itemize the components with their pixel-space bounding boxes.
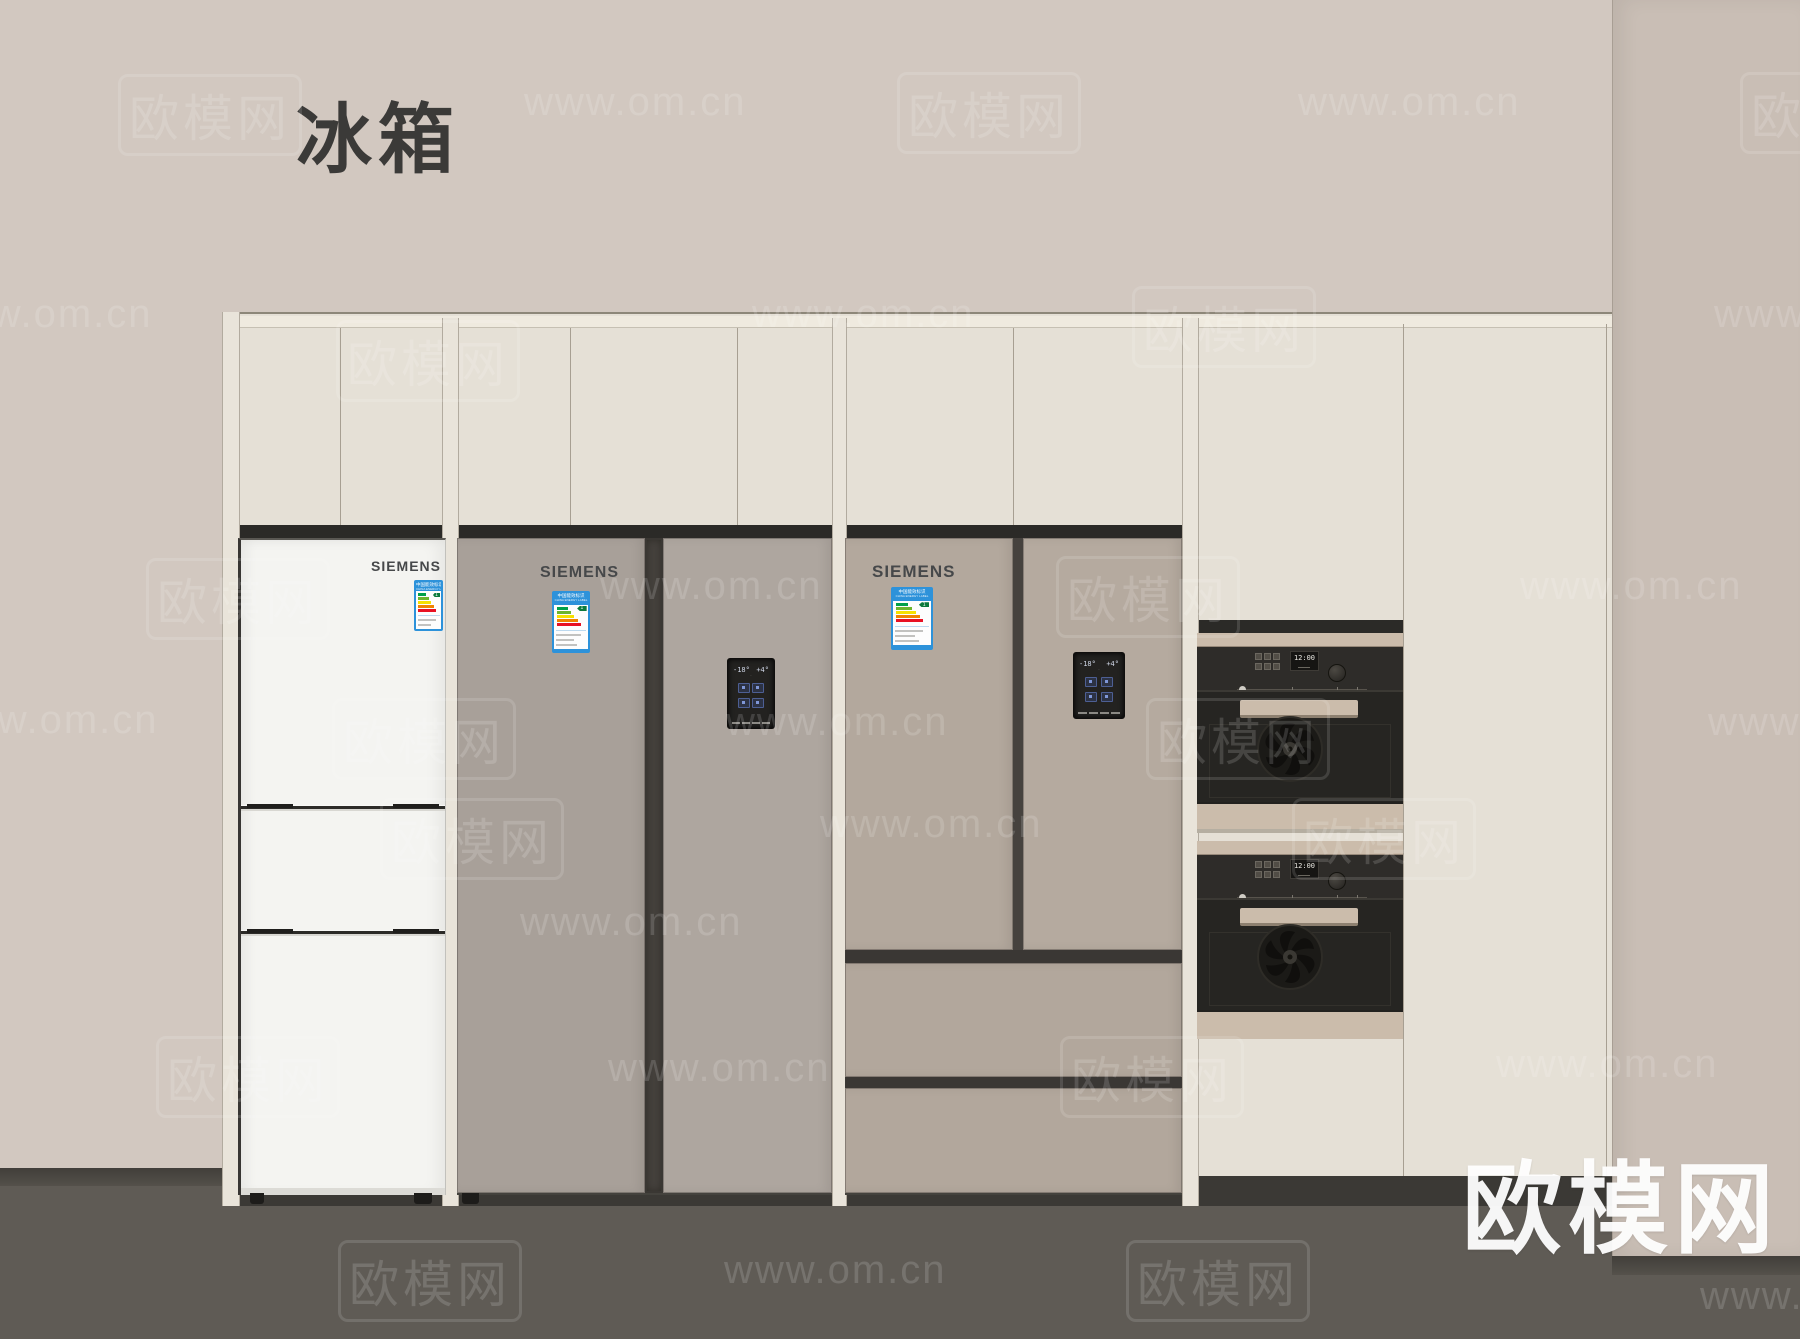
- watermark-url: www.om.cn: [820, 802, 1043, 847]
- watermark-brand: 欧模网: [897, 72, 1081, 154]
- watermark-brand: 欧模网: [338, 1240, 522, 1322]
- watermark-brand: 欧模网: [118, 74, 302, 156]
- watermark-url: www.om.cn: [1708, 700, 1800, 745]
- watermark-url: www.om.cn: [1496, 1042, 1719, 1087]
- watermark-url: www.om.cn: [726, 700, 949, 745]
- watermark-url: www.om.cn: [724, 1248, 947, 1293]
- watermark-url: www.om.cn: [524, 80, 747, 125]
- watermark-url: www.om.cn: [1520, 564, 1743, 609]
- watermark-url: www.om.cn: [600, 564, 823, 609]
- watermark-url: www.om.cn: [520, 900, 743, 945]
- watermark-url: www.om.cn: [0, 698, 159, 743]
- site-logo: 欧模网: [1462, 1128, 1780, 1273]
- watermark-url: www.om.cn: [1700, 1274, 1800, 1319]
- watermark-brand: 欧模网: [1740, 72, 1800, 154]
- watermark-brand: 欧模网: [1056, 556, 1240, 638]
- watermark-brand: 欧模网: [156, 1036, 340, 1118]
- watermark-url: www.om.cn: [1298, 80, 1521, 125]
- watermark-url: www.om.cn: [0, 292, 153, 337]
- watermark-brand: 欧模网: [1146, 698, 1330, 780]
- watermark-brand: 欧模网: [1292, 798, 1476, 880]
- watermark-url: www.om.cn: [608, 1046, 831, 1091]
- watermark-brand: 欧模网: [1126, 1240, 1310, 1322]
- watermark-brand: 欧模网: [336, 320, 520, 402]
- watermark-url: www.om.cn: [1714, 292, 1800, 337]
- watermark-brand: 欧模网: [380, 798, 564, 880]
- scene: SIEMENS 中国能效标识 CHINA ENERGY LABEL 1 SIEM…: [0, 0, 1800, 1339]
- watermark-brand: 欧模网: [146, 558, 330, 640]
- watermark-brand: 欧模网: [332, 698, 516, 780]
- watermark-brand: 欧模网: [1060, 1036, 1244, 1118]
- watermark-brand: 欧模网: [1132, 286, 1316, 368]
- watermark-url: www.om.cn: [752, 292, 975, 337]
